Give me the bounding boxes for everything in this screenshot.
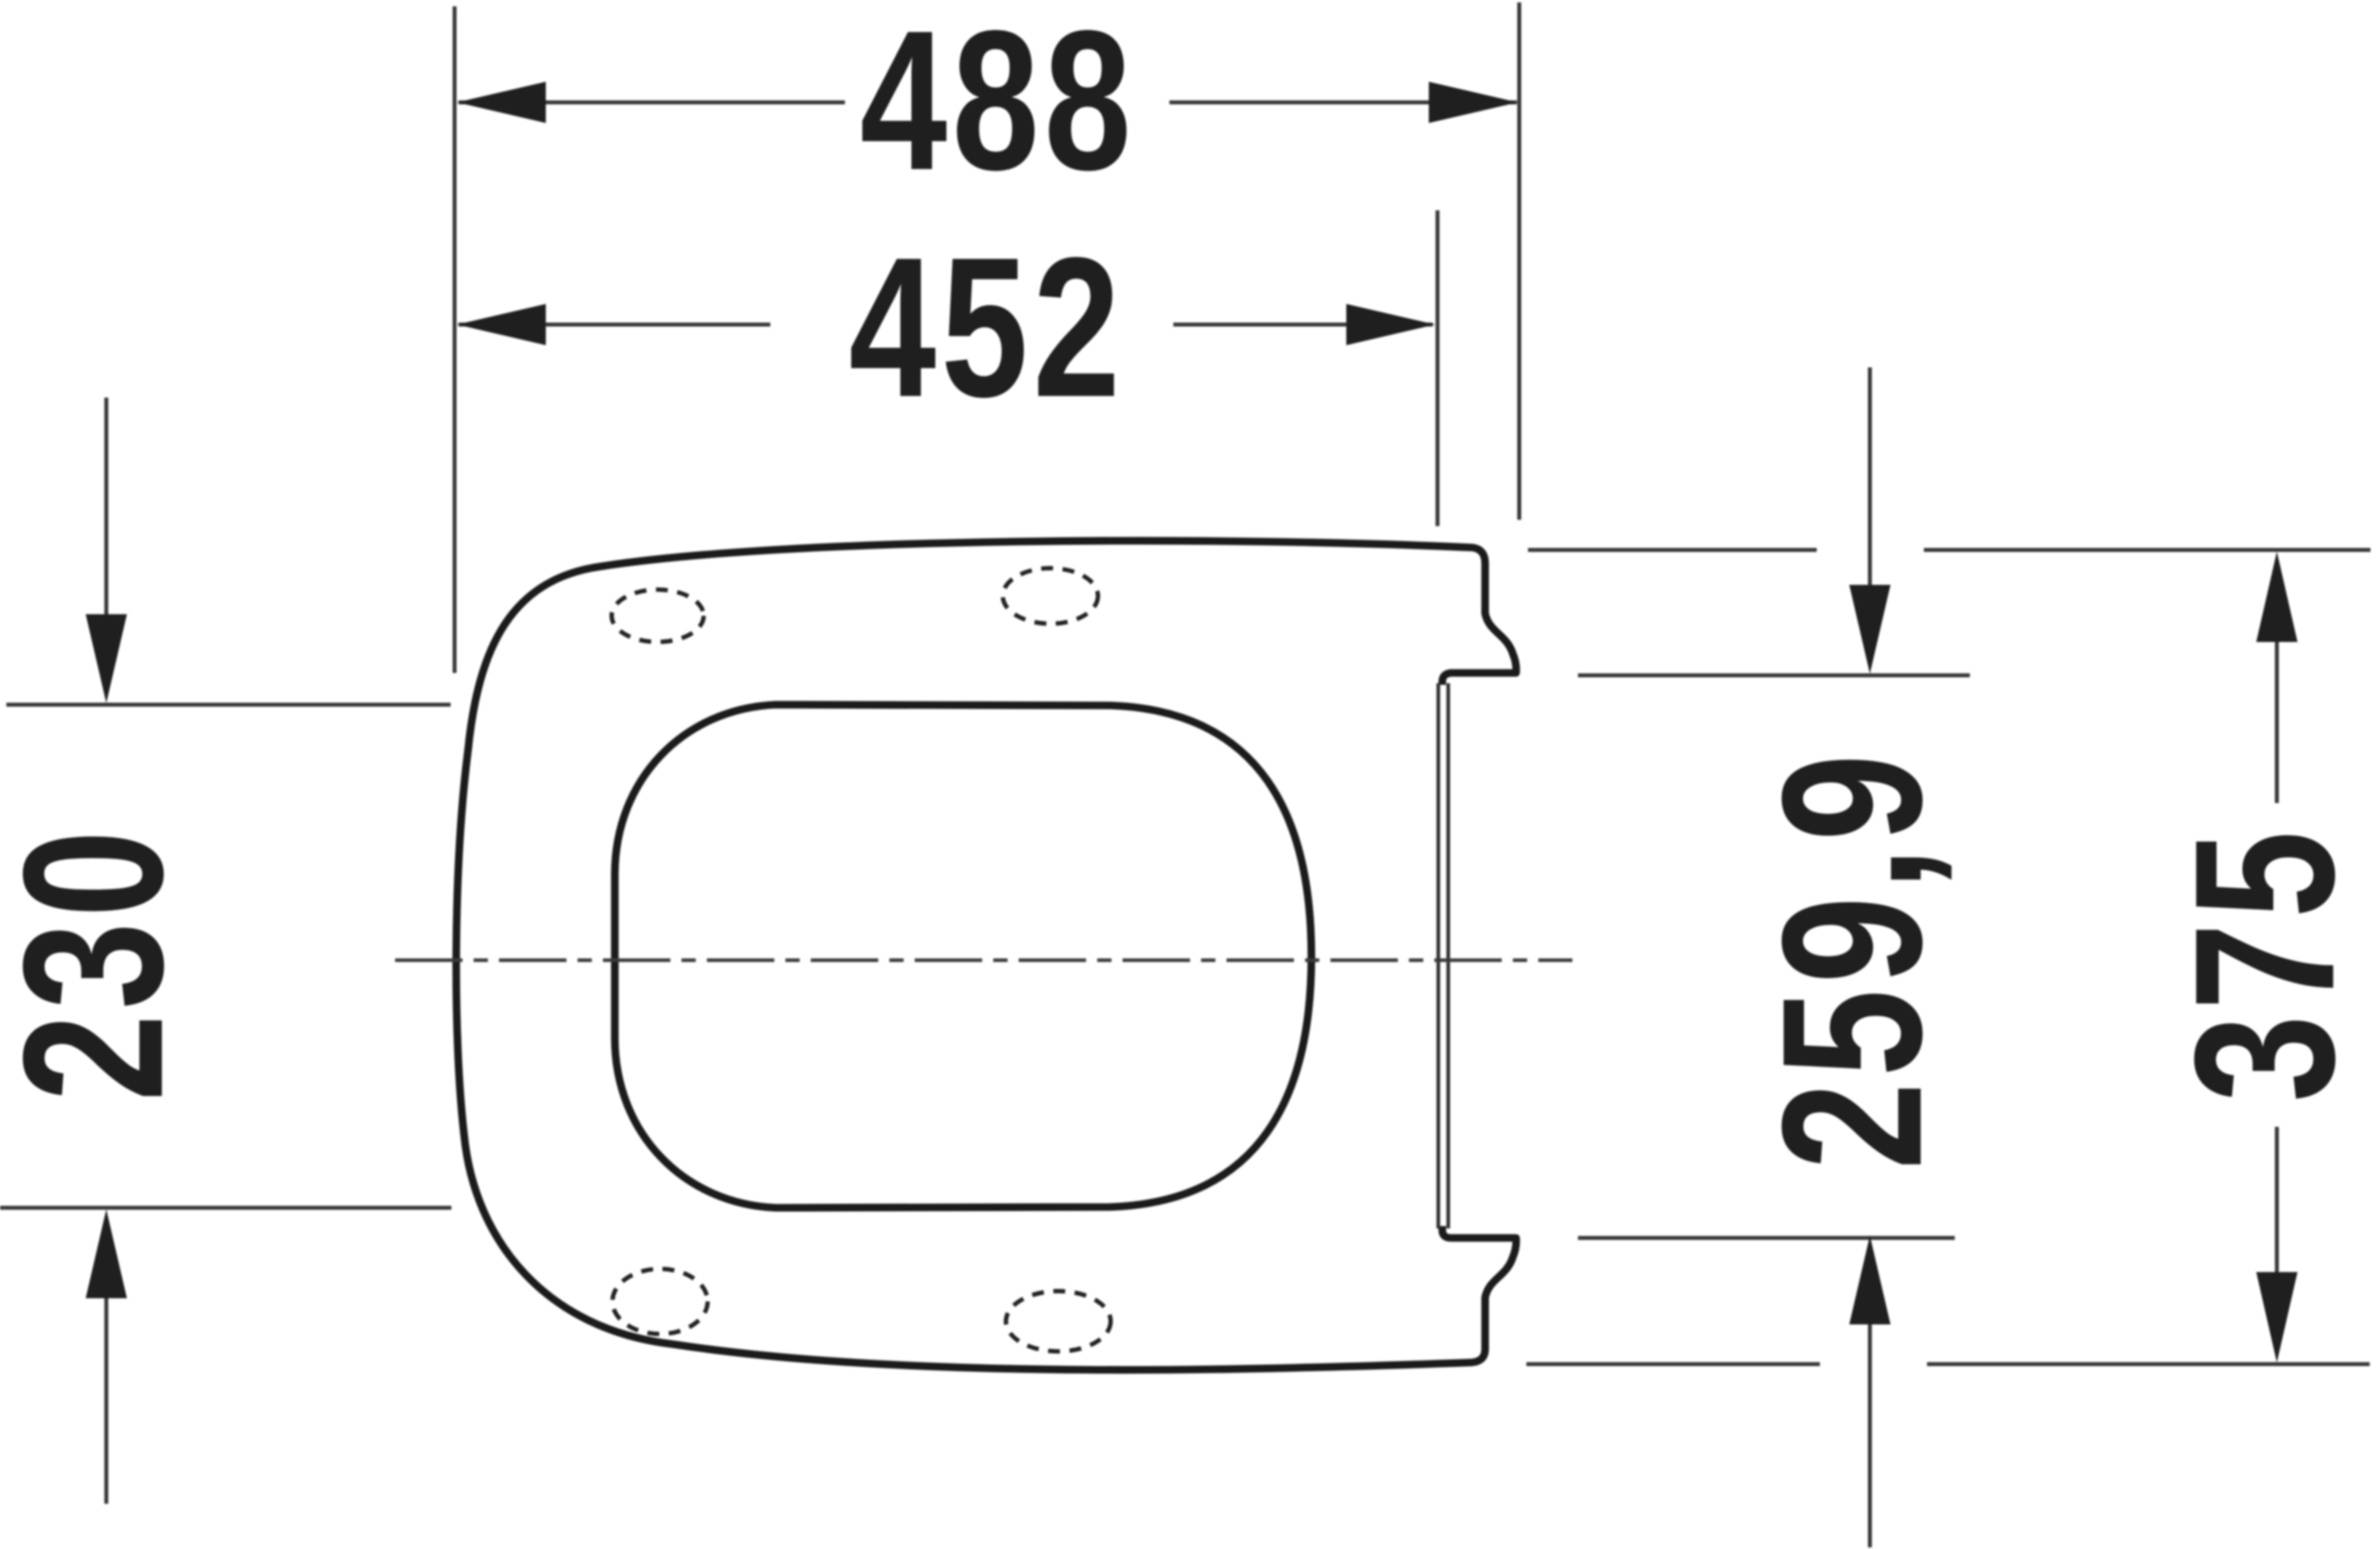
svg-text:488: 488 [860,0,1131,211]
svg-text:230: 230 [0,830,204,1101]
svg-text:452: 452 [849,215,1120,438]
svg-text:259,9: 259,9 [1740,754,1963,1170]
svg-text:375: 375 [2152,831,2375,1102]
